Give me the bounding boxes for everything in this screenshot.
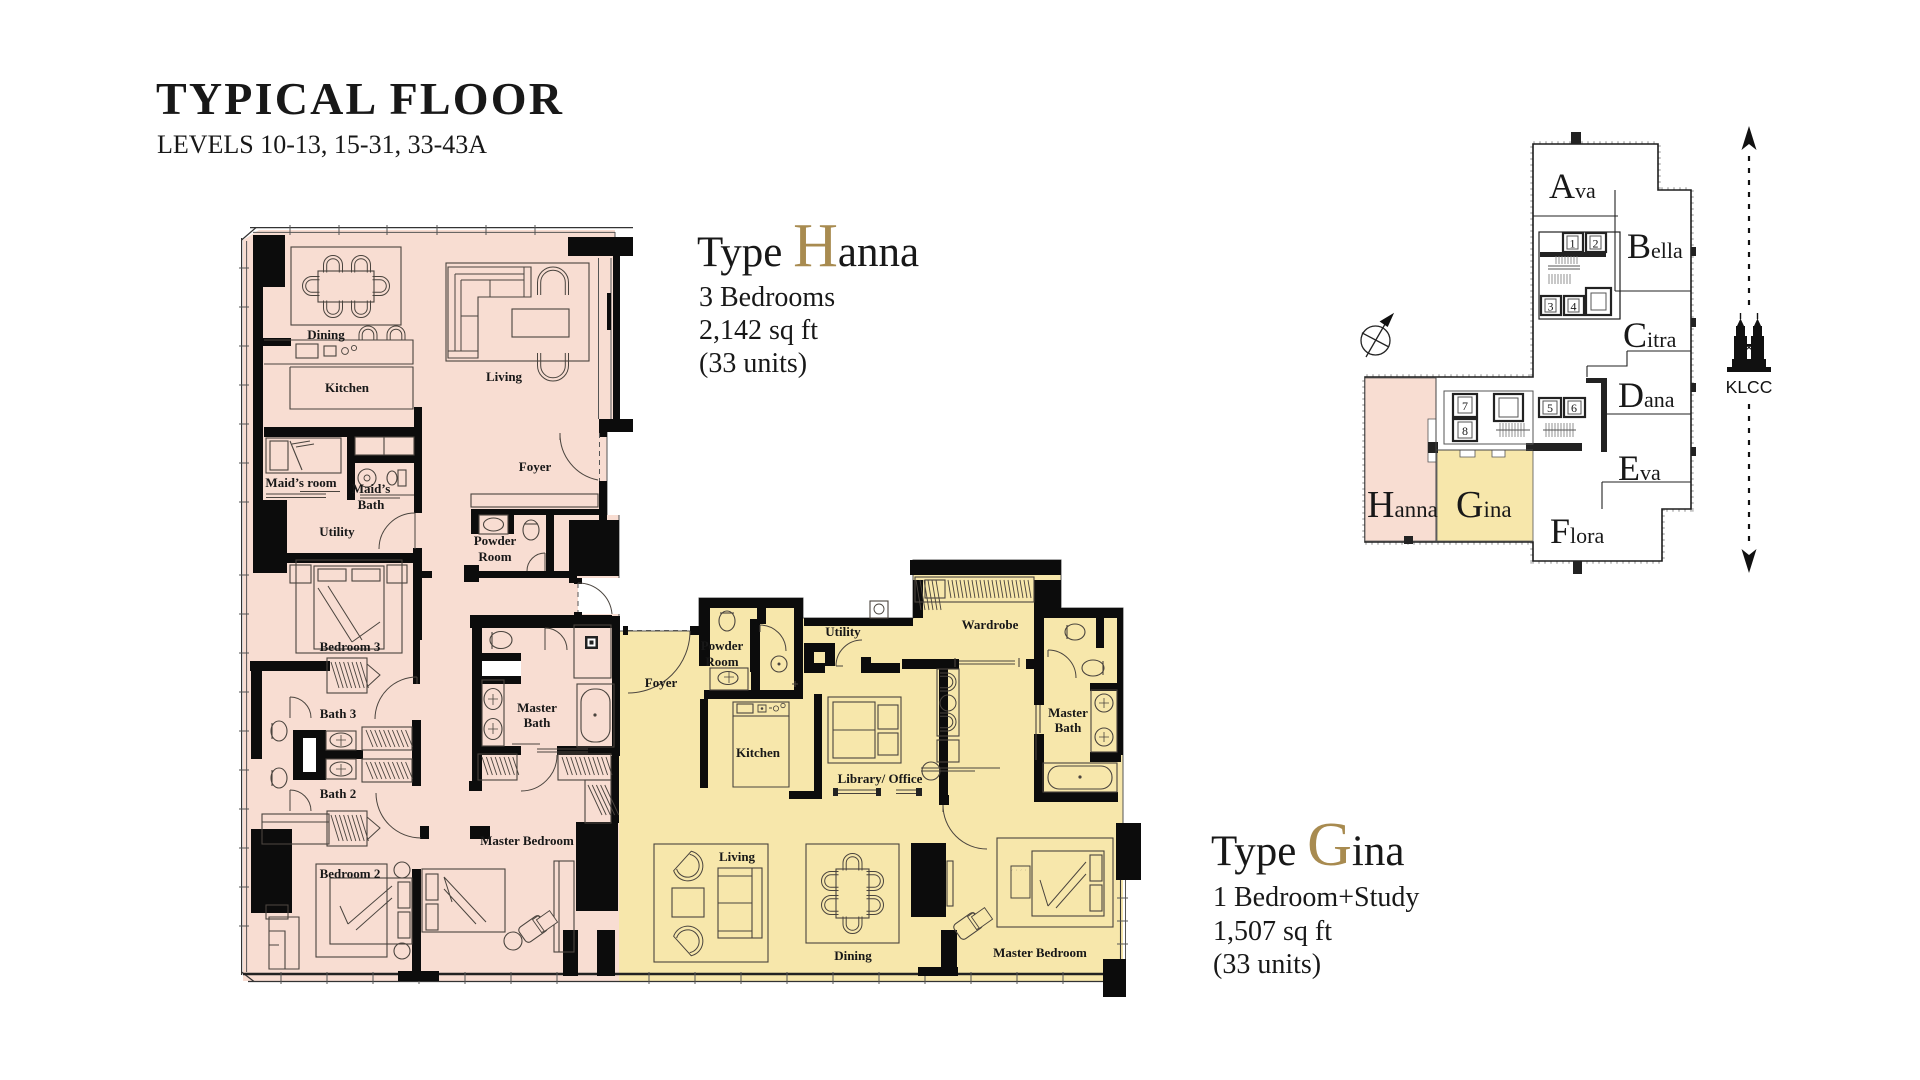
svg-text:KLCC: KLCC: [1726, 377, 1773, 397]
svg-text:Type Gina: Type Gina: [1211, 811, 1404, 879]
svg-text:Bath 3: Bath 3: [320, 706, 357, 721]
svg-text:6: 6: [1571, 401, 1577, 415]
svg-text:Kitchen: Kitchen: [325, 380, 370, 395]
svg-text:Foyer: Foyer: [519, 459, 552, 474]
svg-text:Kitchen: Kitchen: [736, 745, 781, 760]
svg-text:Maid’s room: Maid’s room: [265, 475, 336, 490]
svg-text:Powder: Powder: [701, 638, 744, 653]
svg-text:Bath: Bath: [1055, 720, 1083, 735]
svg-text:Bath: Bath: [524, 715, 552, 730]
svg-text:Master: Master: [1048, 705, 1088, 720]
svg-text:Dining: Dining: [307, 327, 345, 342]
svg-text:Bath 2: Bath 2: [320, 786, 356, 801]
svg-text:Library/ Office: Library/ Office: [838, 771, 923, 786]
svg-text:Wardrobe: Wardrobe: [962, 617, 1019, 632]
svg-text:Bedroom 2: Bedroom 2: [320, 866, 381, 881]
svg-text:Dining: Dining: [834, 948, 872, 963]
svg-text:3: 3: [1548, 300, 1554, 314]
svg-text:Maid’s: Maid’s: [352, 481, 391, 496]
svg-text:2,142 sq ft: 2,142 sq ft: [699, 315, 818, 346]
svg-text:Bath: Bath: [358, 497, 386, 512]
svg-text:Master Bedroom: Master Bedroom: [480, 833, 574, 848]
svg-text:Living: Living: [486, 369, 523, 384]
svg-text:3 Bedrooms: 3 Bedrooms: [699, 282, 835, 313]
svg-text:TYPICAL FLOOR: TYPICAL FLOOR: [156, 73, 564, 124]
svg-text:8: 8: [1462, 424, 1468, 438]
svg-text:Room: Room: [478, 549, 511, 564]
svg-text:Room: Room: [705, 654, 738, 669]
svg-text:2: 2: [1593, 237, 1599, 251]
svg-text:1 Bedroom+Study: 1 Bedroom+Study: [1213, 882, 1419, 913]
svg-text:Living: Living: [719, 849, 756, 864]
svg-text:Type Hanna: Type Hanna: [697, 212, 919, 280]
svg-text:LEVELS 10-13, 15-31, 33-43A: LEVELS 10-13, 15-31, 33-43A: [157, 130, 487, 159]
svg-text:(33 units): (33 units): [699, 348, 807, 379]
svg-text:Master Bedroom: Master Bedroom: [993, 945, 1087, 960]
svg-text:Bedroom 3: Bedroom 3: [320, 639, 381, 654]
svg-text:5: 5: [1547, 401, 1553, 415]
svg-text:Utility: Utility: [825, 624, 861, 639]
svg-text:(33 units): (33 units): [1213, 949, 1321, 980]
svg-text:1,507 sq ft: 1,507 sq ft: [1213, 916, 1332, 947]
svg-text:Utility: Utility: [319, 524, 355, 539]
svg-text:1: 1: [1570, 237, 1576, 251]
svg-text:7: 7: [1462, 399, 1468, 413]
svg-text:Foyer: Foyer: [645, 675, 678, 690]
svg-text:Powder: Powder: [474, 533, 517, 548]
svg-text:Master: Master: [517, 700, 557, 715]
svg-text:4: 4: [1571, 300, 1577, 314]
